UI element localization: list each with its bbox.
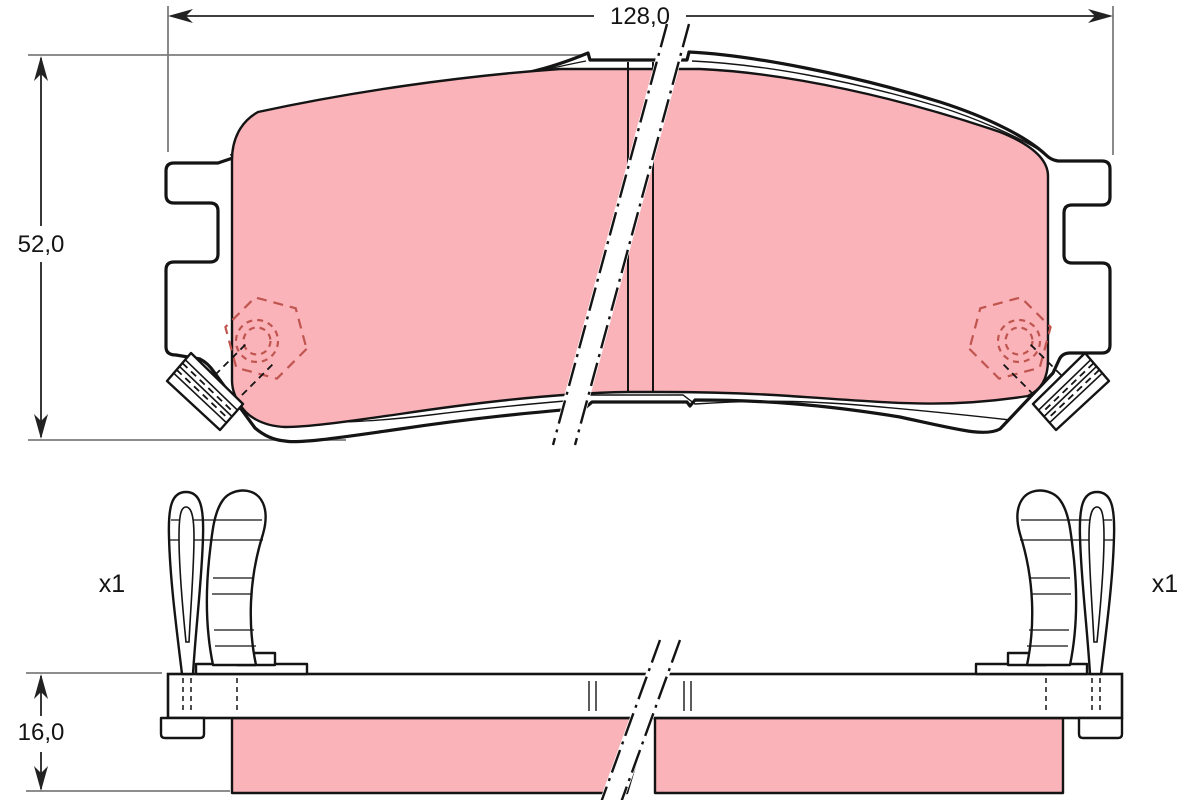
drawing-svg: 128,0 52,0 16,0 x1 x1 [0, 0, 1200, 800]
quantity-labels: x1 x1 [99, 570, 1178, 598]
clip-quantity-right: x1 [1152, 570, 1178, 598]
height-dimension-label: 52,0 [18, 231, 65, 258]
clip-quantity-left: x1 [99, 570, 125, 598]
thickness-dimension-label: 16,0 [18, 719, 65, 746]
friction-side-left [232, 718, 649, 793]
width-dimension-label: 128,0 [610, 3, 670, 30]
friction-side-right [655, 718, 1063, 793]
dimension-height: 52,0 [18, 56, 65, 439]
pad-front-view [28, 24, 1110, 445]
brake-pad-technical-drawing: 128,0 52,0 16,0 x1 x1 [0, 0, 1200, 800]
pad-side-view [161, 491, 1122, 800]
